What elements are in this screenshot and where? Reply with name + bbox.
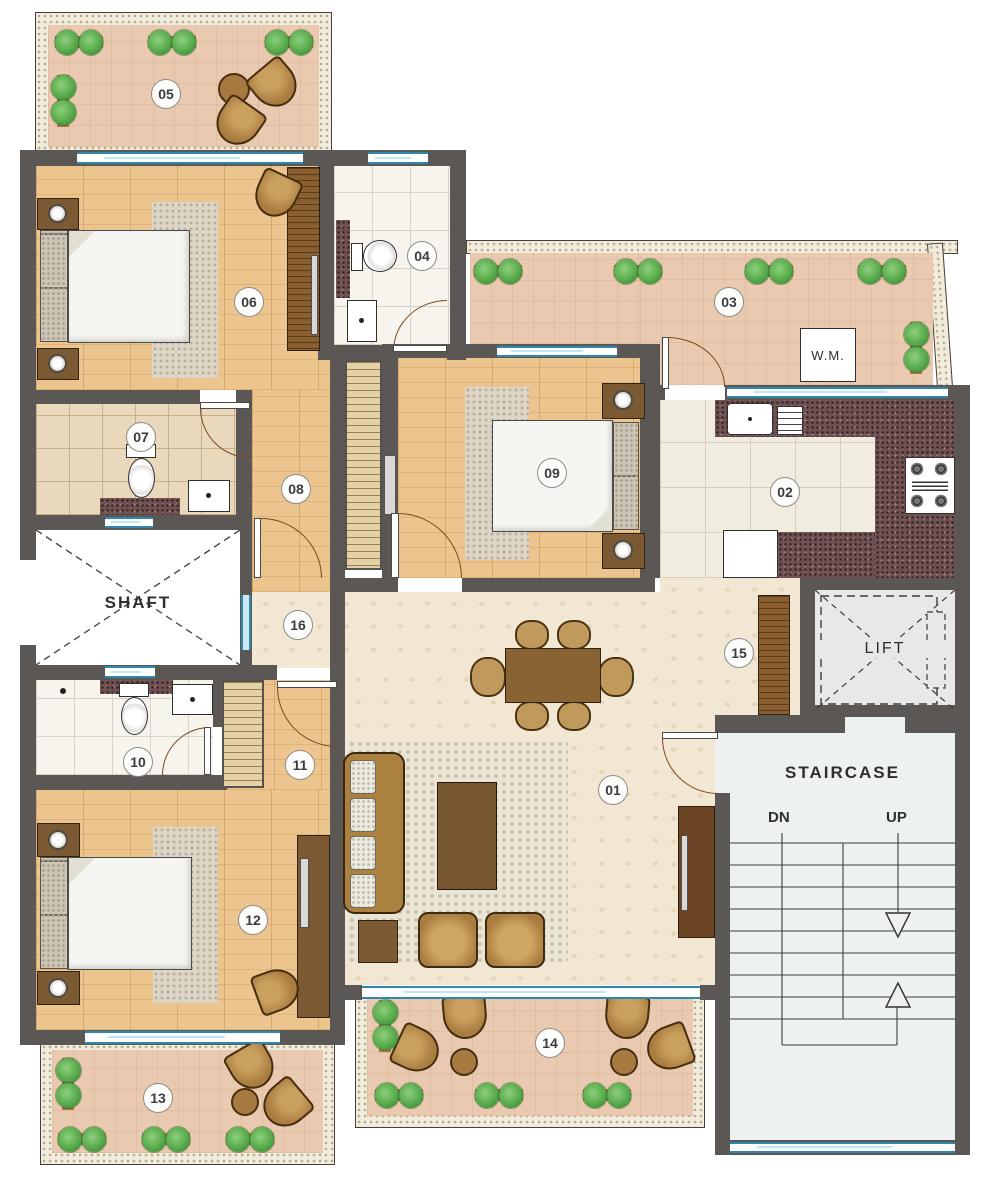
window <box>77 152 303 164</box>
room-label-04: 04 <box>407 241 437 271</box>
plant-icon <box>51 100 76 125</box>
sink-drain <box>748 417 752 421</box>
wall <box>955 715 970 1155</box>
bed-fold <box>69 858 95 884</box>
room-label-07: 07 <box>126 422 156 452</box>
door-leaf <box>662 337 669 389</box>
room-number: 13 <box>150 1090 166 1106</box>
plant-icon <box>904 347 929 372</box>
wall <box>715 715 845 733</box>
plant-icon <box>904 322 929 347</box>
room-label-02: 02 <box>770 477 800 507</box>
door-leaf <box>254 518 261 578</box>
sofa-cushion <box>350 798 376 832</box>
plant-icon <box>172 30 196 55</box>
bed-pillows <box>40 857 68 969</box>
dining-chair <box>515 620 549 650</box>
bedside-lamp <box>613 540 633 560</box>
toilet-bowl <box>363 240 397 272</box>
bedside-lamp <box>48 354 67 373</box>
plant-icon <box>399 1083 423 1108</box>
lift-label: LIFT <box>815 640 955 658</box>
room-number: 08 <box>288 481 304 497</box>
plant-pair <box>226 1126 274 1152</box>
dining-table <box>505 648 601 703</box>
burner-icon <box>934 494 948 508</box>
room-number: 10 <box>130 754 146 770</box>
plant-icon <box>56 1058 81 1083</box>
room-label-09: 09 <box>537 458 567 488</box>
plant-pair <box>745 258 793 284</box>
bed-pillows <box>613 422 639 530</box>
wall <box>20 404 36 530</box>
staircase-dn-label: DN <box>768 809 790 826</box>
wall <box>450 150 466 360</box>
door-leaf <box>391 513 399 578</box>
room-number: 01 <box>605 782 621 798</box>
room-label-06: 06 <box>234 287 264 317</box>
stove <box>905 457 955 514</box>
floor-plan: W.M. <box>0 0 1000 1192</box>
sofa-cushion <box>350 836 376 870</box>
plant-icon <box>58 1127 82 1152</box>
entrance-door-leaf <box>758 595 790 715</box>
room-label-10: 10 <box>123 747 153 777</box>
staircase-up-label: UP <box>886 809 907 826</box>
sofa-cushion <box>350 874 376 908</box>
kitchen-counter <box>778 532 875 578</box>
wall <box>20 150 36 404</box>
dining-chair <box>557 620 591 650</box>
room-number: 09 <box>544 465 560 481</box>
wall <box>955 385 970 725</box>
coffee-table <box>437 782 497 890</box>
plant-icon <box>769 259 793 284</box>
plant-pair <box>58 1126 106 1152</box>
room-label-13: 13 <box>143 1083 173 1113</box>
plant-pair <box>50 75 76 127</box>
burner-icon <box>934 462 948 476</box>
lobby-gap <box>845 717 905 733</box>
entrance-door <box>662 732 718 739</box>
plant-icon <box>373 1000 398 1025</box>
plant-icon <box>375 1083 399 1108</box>
room-label-16: 16 <box>283 610 313 640</box>
room-number: 07 <box>133 429 149 445</box>
plant-icon <box>226 1127 250 1152</box>
plant-icon <box>499 1083 523 1108</box>
desk-panel <box>300 858 309 928</box>
tv-screen <box>681 835 688 911</box>
plant-icon <box>289 30 313 55</box>
drainboard <box>777 406 803 435</box>
basin-drain <box>190 697 195 702</box>
staircase: STAIRCASE DN UP <box>730 733 955 1140</box>
room-label-03: 03 <box>714 287 744 317</box>
wardrobe-slider <box>384 455 396 515</box>
plant-icon <box>55 30 79 55</box>
window <box>727 387 948 398</box>
shaft-label: SHAFT <box>36 593 240 613</box>
basin-drain <box>206 493 211 498</box>
washing-machine: W.M. <box>800 328 856 382</box>
toilet-tank <box>119 683 149 697</box>
plant-icon <box>882 259 906 284</box>
washing-machine-label: W.M. <box>811 348 845 363</box>
bed-fold <box>69 231 95 257</box>
plant-icon <box>745 259 769 284</box>
burner-icon <box>910 494 924 508</box>
plant-icon <box>614 259 638 284</box>
plant-icon <box>475 1083 499 1108</box>
fridge <box>723 530 778 578</box>
wall <box>800 590 815 710</box>
room-label-15: 15 <box>724 638 754 668</box>
plant-pair <box>148 29 196 55</box>
wardrobe-slider <box>311 255 318 335</box>
window <box>105 666 155 678</box>
burner-icon <box>910 462 924 476</box>
round-table <box>450 1048 478 1076</box>
round-table <box>231 1088 259 1116</box>
basin-drain <box>359 318 364 323</box>
door-leaf <box>277 681 337 688</box>
toilet-bowl <box>128 458 155 498</box>
room-number: 11 <box>293 757 308 773</box>
room-label-12: 12 <box>238 905 268 935</box>
room-label-01: 01 <box>598 775 628 805</box>
armchair <box>418 912 478 968</box>
plant-pair <box>265 29 313 55</box>
balcony-03-band-top <box>466 240 958 254</box>
room-number: 06 <box>241 294 257 310</box>
room-label-11: 11 <box>285 750 315 780</box>
plant-icon <box>56 1083 81 1108</box>
plant-pair <box>375 1082 423 1108</box>
wardrobe <box>222 680 264 788</box>
dining-chair <box>557 701 591 731</box>
dining-chair <box>470 657 506 697</box>
vanity-counter <box>336 220 350 298</box>
plant-pair <box>858 258 906 284</box>
plant-pair <box>583 1082 631 1108</box>
door-leaf <box>204 727 211 775</box>
door-leaf <box>393 345 447 352</box>
bed-fold <box>586 505 612 531</box>
plant-icon <box>142 1127 166 1152</box>
plant-pair <box>55 1058 81 1110</box>
room-number: 14 <box>542 1035 558 1051</box>
plant-icon <box>474 259 498 284</box>
bedside-lamp <box>48 204 67 223</box>
dining-chair <box>598 657 634 697</box>
plant-icon <box>148 30 172 55</box>
round-table <box>610 1048 638 1076</box>
wall <box>318 166 334 346</box>
plant-pair <box>142 1126 190 1152</box>
plant-icon <box>82 1127 106 1152</box>
vanity-counter <box>100 498 180 515</box>
room-number: 12 <box>245 912 261 928</box>
window <box>497 346 617 357</box>
room-number: 04 <box>414 248 430 264</box>
window <box>362 986 700 999</box>
wardrobe <box>345 360 382 570</box>
room-number: 02 <box>777 484 793 500</box>
plant-icon <box>373 1025 398 1050</box>
door-leaf <box>200 402 250 409</box>
grill-icon <box>912 479 948 491</box>
window <box>105 517 153 528</box>
lift-shaft: LIFT <box>815 590 955 710</box>
staircase-label: STAIRCASE <box>730 763 955 783</box>
sofa-cushion <box>350 760 376 794</box>
room-label-08: 08 <box>281 474 311 504</box>
window <box>85 1031 280 1044</box>
plant-pair <box>55 29 103 55</box>
wall <box>330 345 345 592</box>
side-table <box>358 920 398 963</box>
wall <box>20 515 36 560</box>
plant-icon <box>607 1083 631 1108</box>
plant-icon <box>265 30 289 55</box>
plant-icon <box>79 30 103 55</box>
room-label-14: 14 <box>535 1028 565 1058</box>
plant-icon <box>166 1127 190 1152</box>
plant-icon <box>498 259 522 284</box>
wall <box>36 775 213 790</box>
wall <box>462 578 655 592</box>
bedside-lamp <box>48 978 68 998</box>
plant-icon <box>638 259 662 284</box>
wall <box>20 680 36 1045</box>
plant-icon <box>583 1083 607 1108</box>
room-number: 05 <box>158 86 174 102</box>
wall <box>20 390 200 404</box>
plant-pair <box>903 322 929 374</box>
toilet-bowl <box>121 697 148 735</box>
window <box>730 1142 955 1153</box>
plant-icon <box>250 1127 274 1152</box>
plant-pair <box>474 258 522 284</box>
plant-pair <box>614 258 662 284</box>
toilet-tank <box>351 243 363 271</box>
room-label-05: 05 <box>151 79 181 109</box>
armchair <box>485 912 545 968</box>
sofa <box>343 752 405 914</box>
bedside-lamp <box>613 390 633 410</box>
plant-icon <box>858 259 882 284</box>
plant-icon <box>51 75 76 100</box>
wall <box>330 985 362 1000</box>
room-number: 03 <box>721 294 737 310</box>
dining-chair <box>515 701 549 731</box>
room-number: 15 <box>731 645 747 661</box>
room-number: 16 <box>290 617 306 633</box>
shower-icon <box>60 688 66 694</box>
window <box>241 595 251 650</box>
plant-pair <box>372 1000 398 1052</box>
bed-pillows <box>40 230 68 342</box>
wall <box>715 793 730 1155</box>
staircase-treads <box>730 733 955 1140</box>
window <box>368 152 428 164</box>
bedside-lamp <box>48 830 68 850</box>
wall <box>700 985 730 1000</box>
plant-pair <box>475 1082 523 1108</box>
